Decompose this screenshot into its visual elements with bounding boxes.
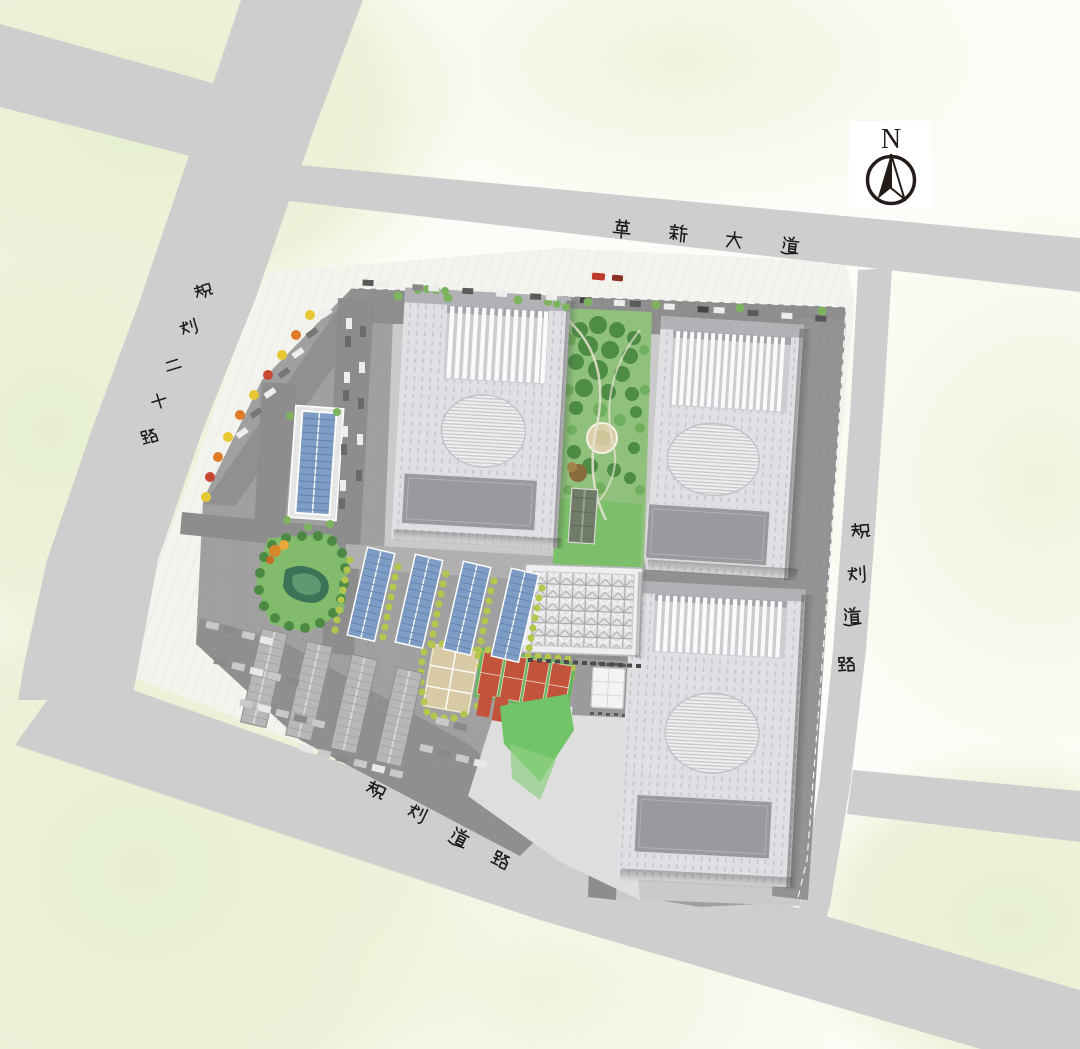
svg-text:N: N xyxy=(881,124,901,155)
